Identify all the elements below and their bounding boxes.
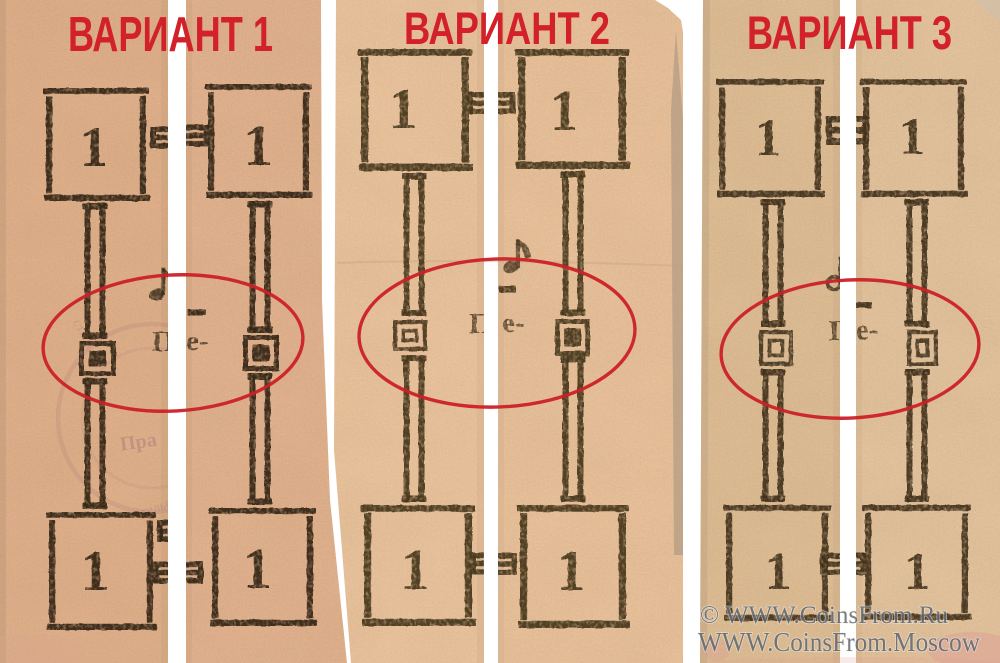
svg-text:е-: е- xyxy=(502,307,525,339)
svg-text:1: 1 xyxy=(80,114,109,179)
svg-text:1: 1 xyxy=(389,76,418,141)
svg-text:1: 1 xyxy=(244,113,273,178)
svg-text:1: 1 xyxy=(899,108,926,166)
svg-text:WWW.CoinsFrom.Moscow: WWW.CoinsFrom.Moscow xyxy=(698,627,980,657)
svg-text:е-: е- xyxy=(186,325,209,357)
svg-text:ВАРИАНТ 1: ВАРИАНТ 1 xyxy=(68,8,273,62)
svg-text:1: 1 xyxy=(755,109,782,167)
svg-text:ВАРИАНТ 3: ВАРИАНТ 3 xyxy=(747,6,952,59)
svg-text:1: 1 xyxy=(557,538,586,603)
svg-text:1: 1 xyxy=(243,536,272,601)
svg-text:1: 1 xyxy=(904,543,931,601)
svg-text:ВАРИАНТ 2: ВАРИАНТ 2 xyxy=(404,3,610,54)
svg-text:е-: е- xyxy=(856,314,879,346)
svg-text:1: 1 xyxy=(765,543,792,601)
svg-text:© WWW.CoinsFrom.Ru: © WWW.CoinsFrom.Ru xyxy=(700,602,948,629)
svg-text:1: 1 xyxy=(81,538,110,603)
svg-text:1: 1 xyxy=(401,537,430,602)
svg-text:1: 1 xyxy=(550,78,579,143)
